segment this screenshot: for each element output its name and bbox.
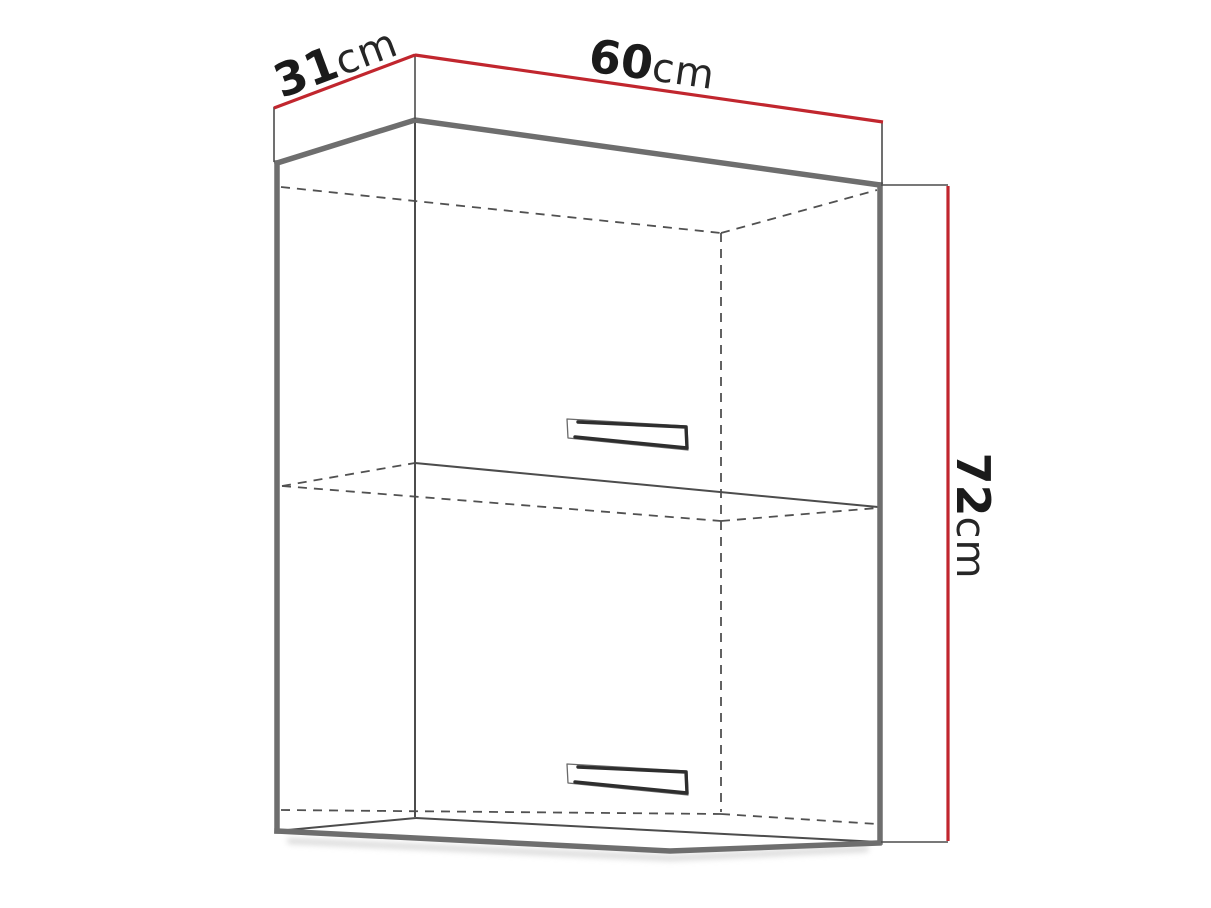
dimension-width: 60cm (415, 28, 883, 184)
interior-top-right-edge (721, 190, 877, 233)
dimension-depth: 31cm (266, 13, 415, 162)
interior-bottom-right-edge (721, 814, 877, 824)
height-unit: cm (947, 517, 993, 580)
shelf-right-edge (721, 508, 877, 521)
top-silhouette-edge (277, 120, 880, 185)
width-value: 60 (586, 28, 657, 91)
cabinet-hidden-edges (281, 187, 877, 824)
cabinet-body (277, 120, 880, 851)
width-dimension-label: 60cm (586, 28, 719, 100)
shelf-front-hidden-edge (282, 463, 415, 486)
height-value: 72 (946, 453, 1000, 517)
interior-bottom-back-edge (281, 810, 721, 814)
height-dimension-label: 72cm (946, 453, 1000, 580)
upper-door-handle (567, 419, 688, 450)
dimension-height: 72cm (881, 185, 1000, 842)
shelf-back-edge (282, 486, 721, 521)
door-divider-shelf-edge (415, 463, 878, 507)
bottom-left-edge (277, 818, 416, 831)
bottom-silhouette-edge (277, 831, 879, 851)
wall-cabinet-diagram: 31cm 60cm 72cm (0, 0, 1211, 908)
interior-top-back-edge (281, 187, 721, 233)
width-unit: cm (649, 44, 718, 99)
lower-door-handle (567, 764, 688, 795)
diagram-canvas: 31cm 60cm 72cm (0, 0, 1211, 908)
depth-dimension-label: 31cm (266, 13, 404, 108)
front-bottom-edge (416, 818, 879, 842)
